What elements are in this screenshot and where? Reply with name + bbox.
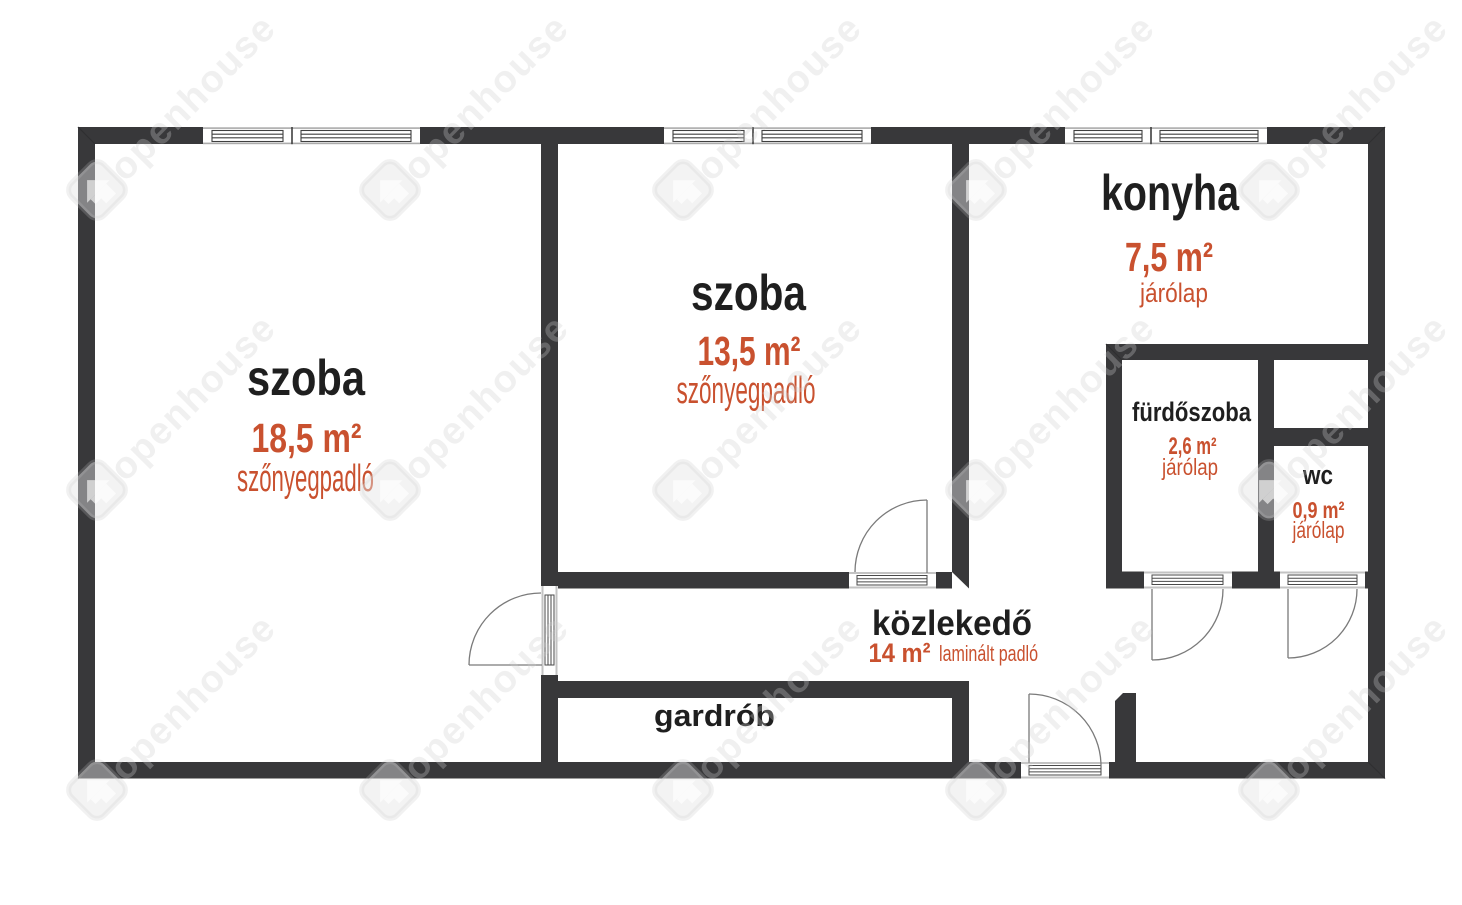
svg-text:szőnyegpadló: szőnyegpadló — [237, 458, 374, 500]
svg-text:laminált padló: laminált padló — [939, 641, 1038, 666]
svg-text:7,5 m²: 7,5 m² — [1125, 234, 1213, 280]
svg-text:18,5 m²: 18,5 m² — [252, 415, 362, 461]
svg-text:járólap: járólap — [1161, 454, 1218, 480]
svg-text:14 m²: 14 m² — [869, 638, 931, 668]
svg-text:járólap: járólap — [1292, 517, 1345, 543]
svg-text:szoba: szoba — [691, 265, 807, 321]
svg-text:szoba: szoba — [247, 350, 366, 406]
svg-text:konyha: konyha — [1101, 165, 1240, 221]
svg-text:járólap: járólap — [1139, 278, 1208, 308]
svg-text:fürdőszoba: fürdőszoba — [1132, 397, 1252, 427]
